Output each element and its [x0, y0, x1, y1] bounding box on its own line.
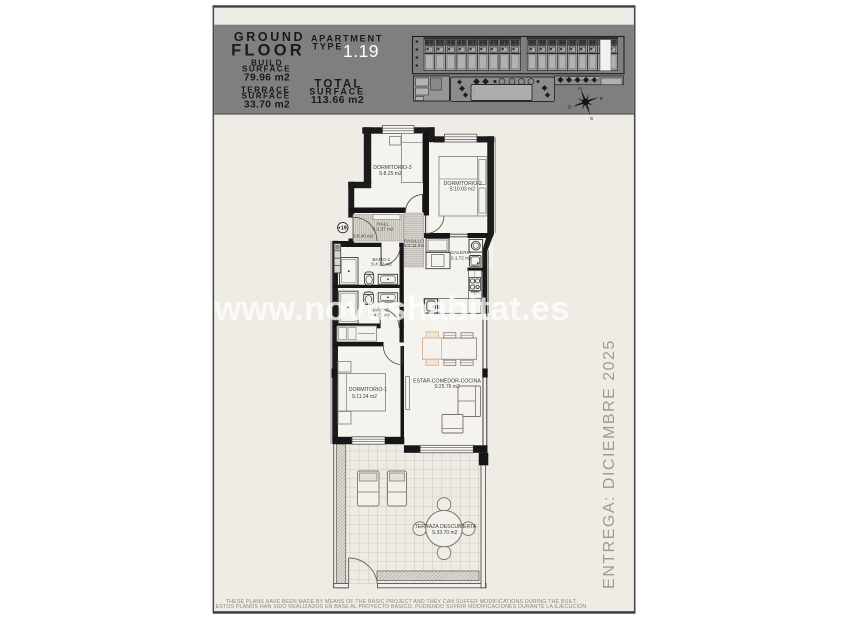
svg-text:S:1.72 m2: S:1.72 m2	[451, 256, 472, 261]
svg-text:S:25.76 m2: S:25.76 m2	[434, 384, 460, 390]
svg-text:S:2.11 m2: S:2.11 m2	[404, 243, 425, 248]
svg-text:1.19: 1.19	[343, 41, 379, 61]
svg-text:O: O	[568, 105, 572, 111]
svg-text:S:33.70 m2: S:33.70 m2	[432, 530, 458, 536]
svg-text:S:4.12 m2: S:4.12 m2	[371, 262, 392, 267]
svg-text:19: 19	[341, 226, 347, 232]
svg-text:DORMITORIO-1: DORMITORIO-1	[349, 387, 387, 393]
svg-text:79.96 m2: 79.96 m2	[244, 72, 290, 83]
svg-text:FLOOR: FLOOR	[231, 42, 305, 60]
svg-text:E: E	[600, 96, 603, 102]
svg-text:S:2.37 m2: S:2.37 m2	[373, 227, 394, 232]
svg-text:S:8.25 m2: S:8.25 m2	[379, 171, 402, 177]
svg-text:www.novushabitat.es: www.novushabitat.es	[213, 290, 569, 328]
svg-text:33.70 m2: 33.70 m2	[244, 99, 290, 110]
svg-text:S:11.24 m2: S:11.24 m2	[352, 394, 377, 400]
svg-text:ESTOS PLANOS HAN SIDO REALIZAD: ESTOS PLANOS HAN SIDO REALIZADOS EN BASE…	[216, 604, 587, 610]
svg-text:ENTREGA: DICIEMBRE 2025: ENTREGA: DICIEMBRE 2025	[601, 339, 618, 589]
svg-text:TYPE: TYPE	[312, 42, 343, 52]
svg-text:S:6.40 m2: S:6.40 m2	[353, 234, 374, 239]
svg-text:S: S	[590, 116, 593, 122]
svg-text:N: N	[578, 86, 582, 92]
svg-text:S:10.03 m2: S:10.03 m2	[449, 186, 475, 192]
svg-text:113.66 m2: 113.66 m2	[311, 94, 364, 106]
svg-text:TERRAZA DESCUBIERTA: TERRAZA DESCUBIERTA	[415, 524, 477, 530]
